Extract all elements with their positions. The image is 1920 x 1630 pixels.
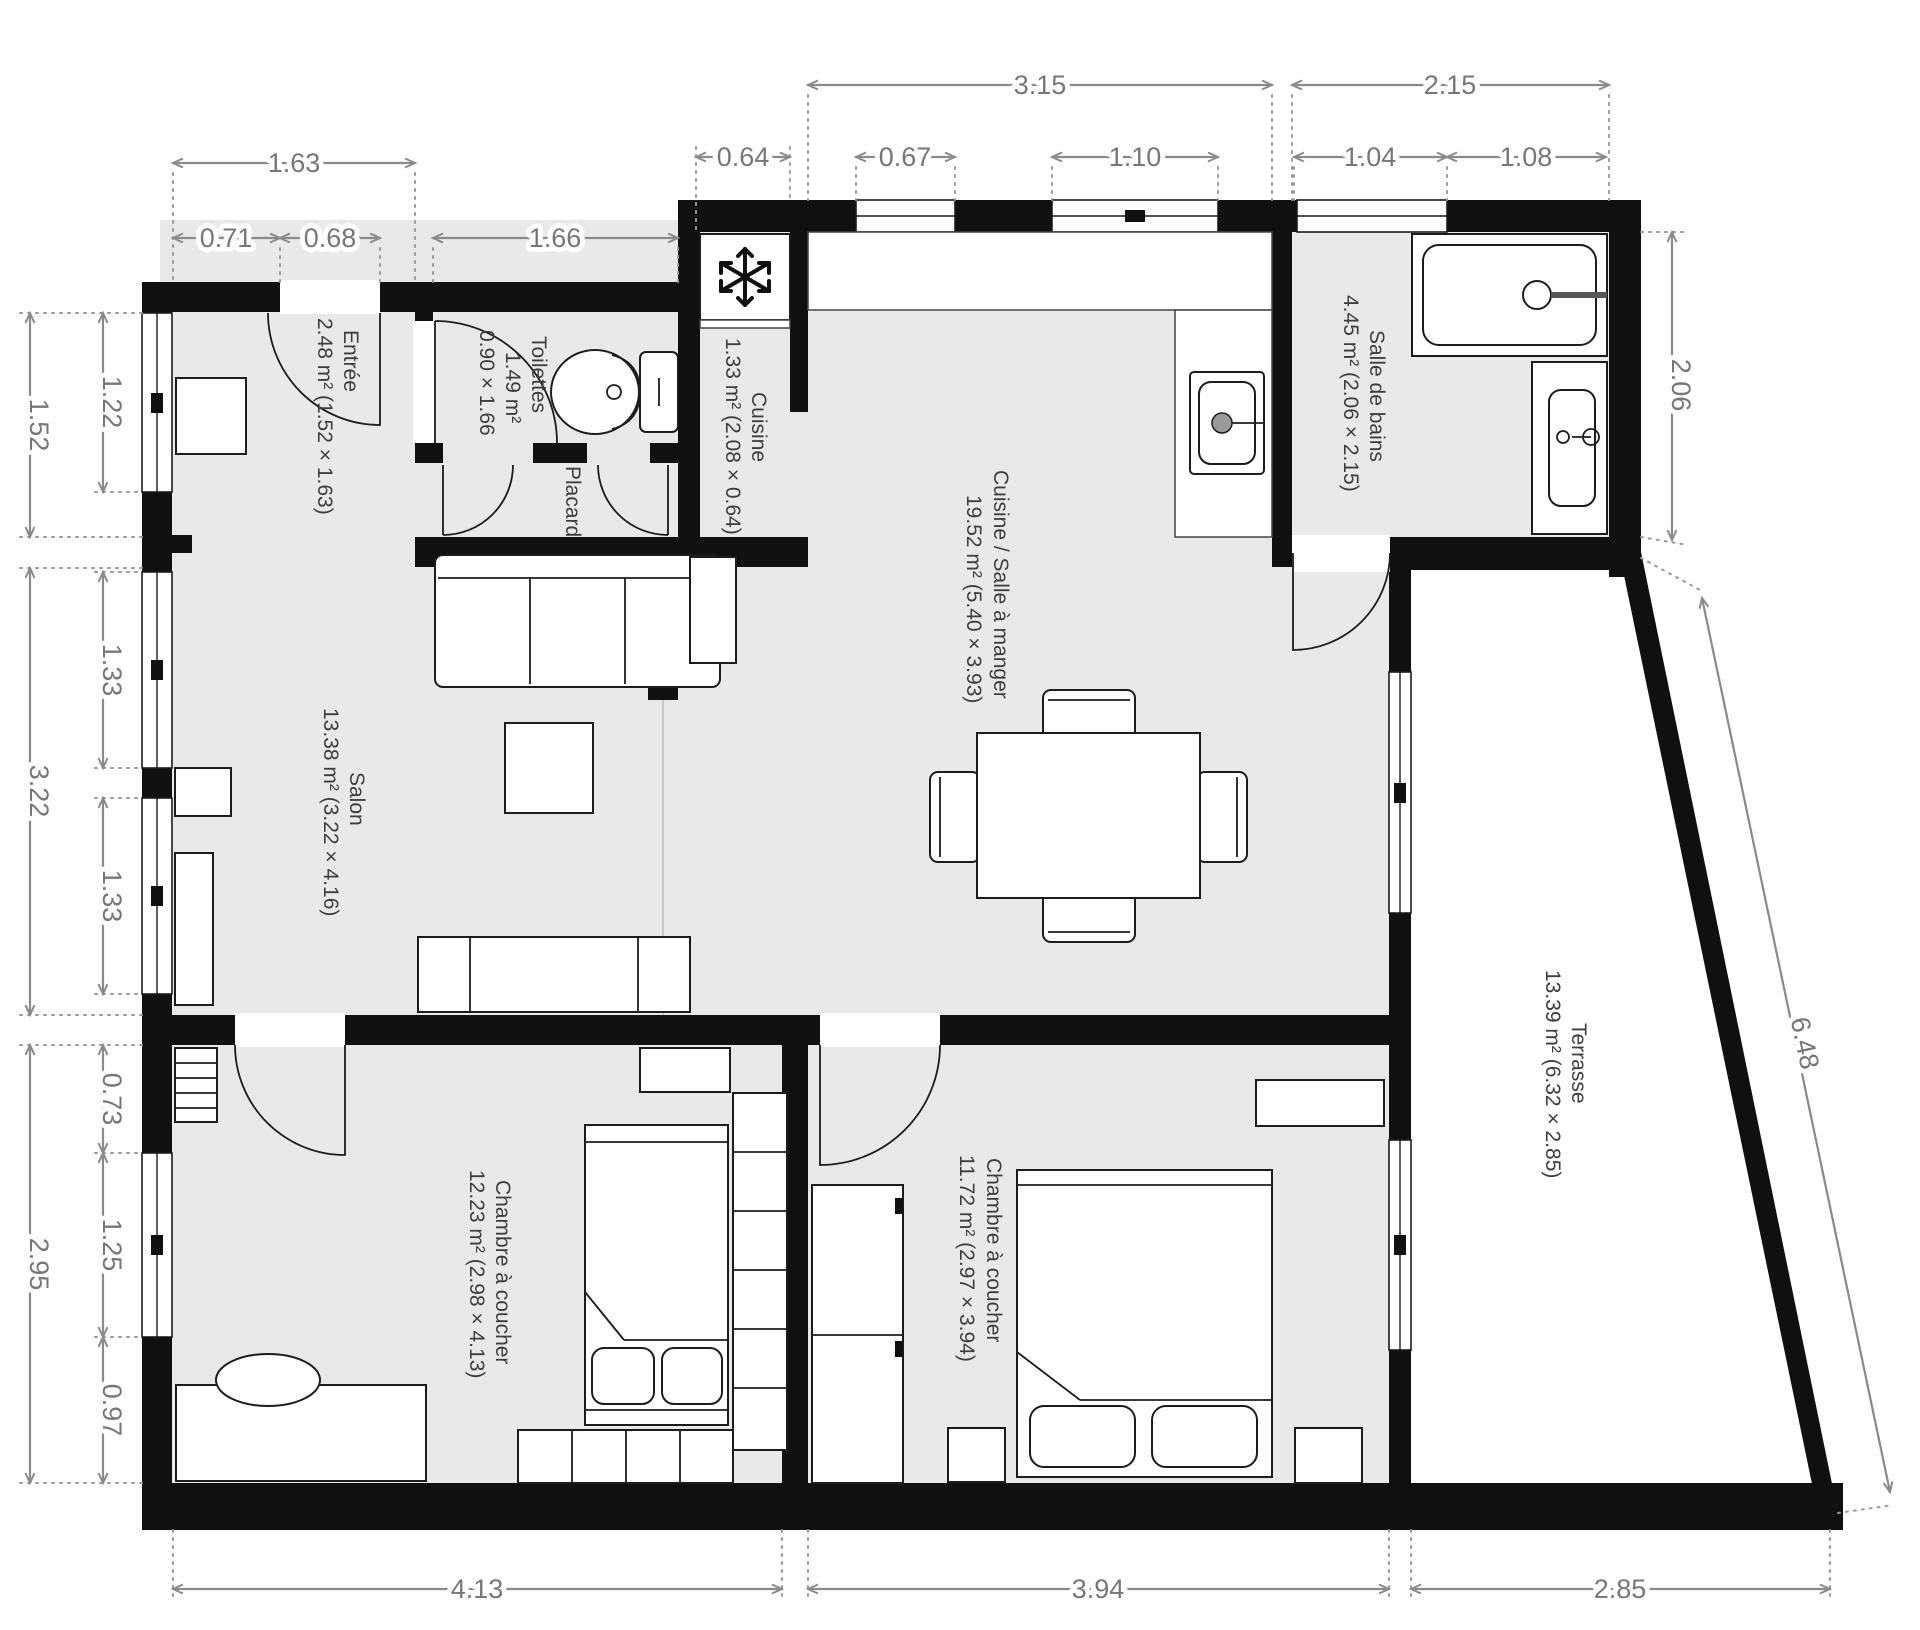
room-area-toilettes: 1.49 m² — [501, 352, 524, 423]
door-opening-entree — [280, 280, 380, 314]
dim-label: 0.68 — [304, 223, 357, 253]
door-opening-bedroom1 — [235, 1013, 345, 1047]
room-size-toilettes: 0.90 × 1.66 — [475, 330, 498, 436]
dim-label: 2.95 — [24, 1238, 54, 1291]
room-label-bedroom1: Chambre à coucher — [491, 1180, 514, 1364]
pillow — [662, 1348, 722, 1404]
bathtub[interactable] — [1412, 234, 1607, 356]
door-opening-bedroom2 — [820, 1013, 940, 1047]
dim-label: 3.22 — [24, 765, 54, 818]
dim-label: 1.10 — [1109, 142, 1162, 172]
dim-label: 1.66 — [529, 223, 582, 253]
room-size-salon: 13.38 m² (3.22 × 4.16) — [319, 708, 342, 916]
wall-placard-pier-center — [533, 443, 587, 463]
room-size-terrace: 13.39 m² (6.32 × 2.85) — [1541, 970, 1564, 1178]
floor-plan-canvas: 3.15 2.15 0.64 0.67 1.10 1.04 1.08 1.63 … — [0, 0, 1920, 1630]
nightstand-left[interactable] — [948, 1428, 1005, 1482]
toilet[interactable] — [551, 350, 678, 434]
dim-label: 1.22 — [97, 376, 127, 429]
sofa[interactable] — [435, 555, 720, 687]
room-label-terrace: Terrasse — [1567, 1023, 1590, 1104]
coffee-table[interactable] — [505, 723, 593, 813]
salon-shelf[interactable] — [175, 853, 213, 1005]
room-size-dining: 19.52 m² (5.40 × 3.93) — [962, 495, 985, 703]
wall-toilettes-right — [678, 200, 700, 567]
door-opening-bathroom — [1292, 535, 1390, 572]
dim-label: 1.04 — [1344, 142, 1397, 172]
dim-label: 0.64 — [717, 142, 770, 172]
pillow — [1152, 1406, 1257, 1467]
dim-label: 1.63 — [268, 148, 321, 178]
dim-label: 2.06 — [1666, 359, 1696, 412]
bed-bedroom2[interactable] — [1017, 1170, 1272, 1477]
room-size-bathroom: 4.45 m² (2.06 × 2.15) — [1339, 295, 1362, 492]
room-label-entree: Entrée — [339, 330, 362, 392]
fridge[interactable] — [700, 234, 790, 328]
cabinet-bedroom1[interactable] — [640, 1048, 730, 1092]
room-label-placard: Placard — [561, 466, 584, 537]
wall-bathroom-left — [1272, 232, 1292, 567]
bed-bedroom1[interactable] — [585, 1125, 728, 1425]
dining-console[interactable] — [690, 557, 736, 663]
wall-bathroom-right — [1609, 200, 1641, 577]
wall-bathroom-bottom — [1390, 537, 1641, 570]
door-opening-toilettes — [413, 321, 435, 443]
wall-placard-pier-left — [415, 443, 443, 463]
nightstand-right[interactable] — [1295, 1428, 1362, 1483]
dim-label: 2.15 — [1424, 70, 1477, 100]
room-label-cuisine: Cuisine — [747, 392, 770, 462]
room-label-bedroom2: Chambre à coucher — [982, 1158, 1005, 1342]
wall-bottom — [142, 1483, 1843, 1530]
bathroom-sink[interactable] — [1532, 362, 1607, 534]
tv-sideboard[interactable] — [418, 937, 690, 1012]
stairs[interactable] — [175, 1048, 217, 1122]
dim-label: 1.33 — [97, 870, 127, 923]
pillow — [1030, 1406, 1135, 1467]
room-size-bedroom2: 11.72 m² (2.97 × 3.94) — [955, 1155, 978, 1362]
dim-label: 2.85 — [1594, 1574, 1647, 1604]
room-label-toilettes: Toilettes — [527, 336, 550, 413]
dresser-bedroom2[interactable] — [1256, 1080, 1384, 1126]
room-size-bedroom1: 12.23 m² (2.98 × 4.13) — [465, 1170, 488, 1378]
dim-label: 3.15 — [1014, 70, 1067, 100]
dim-label: 1.25 — [97, 1219, 127, 1272]
dim-label: 0.97 — [97, 1384, 127, 1437]
dim-label: 0.67 — [879, 142, 932, 172]
dining-chair-bottom[interactable] — [1043, 892, 1135, 942]
dim-label: 1.52 — [24, 399, 54, 452]
dim-label: 0.71 — [200, 223, 253, 253]
dim-label: 4.13 — [451, 1574, 504, 1604]
dining-table[interactable] — [977, 733, 1200, 898]
floor-plan-page: 3.15 2.15 0.64 0.67 1.10 1.04 1.08 1.63 … — [0, 0, 1920, 1630]
dim-label: 1.08 — [1500, 142, 1553, 172]
dim-label: 1.33 — [97, 644, 127, 697]
room-label-bathroom: Salle de bains — [1365, 330, 1388, 462]
salon-cabinet[interactable] — [175, 768, 231, 816]
room-size-cuisine: 1.33 m² (2.08 × 0.64) — [721, 338, 744, 535]
wall-placard-pier-right — [650, 443, 678, 463]
desk-chair[interactable] — [216, 1354, 320, 1406]
entree-cabinet[interactable] — [176, 378, 246, 454]
wall-stub-left — [172, 535, 192, 553]
room-size-entree: 2.48 m² (1.52 × 1.63) — [313, 318, 336, 515]
dining-chair-right[interactable] — [1197, 772, 1247, 862]
dining-chair-left[interactable] — [930, 772, 980, 862]
room-label-salon: Salon — [345, 772, 368, 826]
wardrobe-bedroom2[interactable] — [812, 1185, 903, 1483]
room-label-dining: Cuisine / Salle à manger — [989, 470, 1012, 699]
pillow — [592, 1348, 654, 1404]
dim-label: 0.73 — [97, 1073, 127, 1126]
wall-fridge-nook — [790, 200, 808, 412]
dim-label: 3.94 — [1072, 1574, 1125, 1604]
kitchen-sink[interactable] — [1190, 372, 1264, 474]
